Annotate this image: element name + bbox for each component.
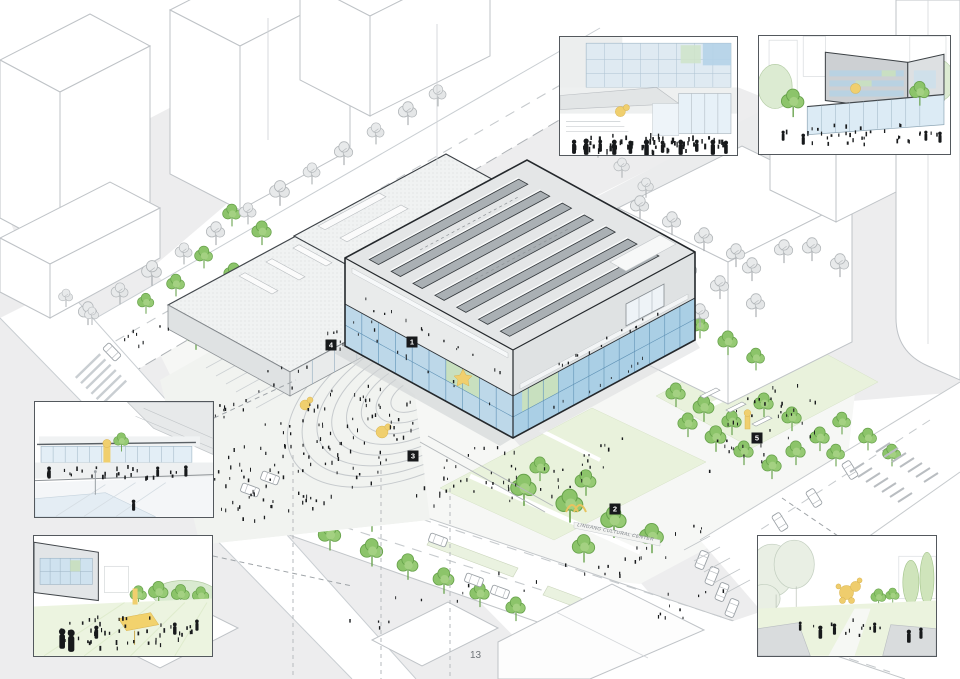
inset-columnar-tree — [920, 552, 934, 604]
person-silhouette — [629, 144, 633, 153]
person-silhouette — [628, 141, 632, 145]
person-silhouette — [710, 140, 715, 145]
person-silhouette — [799, 624, 802, 631]
inset-view-park-sculpture — [757, 535, 937, 657]
person-silhouette — [59, 634, 65, 648]
person-silhouette — [156, 466, 159, 469]
person-silhouette — [782, 134, 785, 141]
person-silhouette — [156, 469, 159, 476]
person-silhouette — [818, 626, 822, 630]
sketch-tree — [398, 102, 416, 125]
plan-marker-1: 1 — [407, 337, 418, 348]
person-silhouette — [799, 622, 802, 625]
person-silhouette — [173, 626, 176, 635]
inset-view-street-level — [34, 401, 214, 518]
inset-corner-perspective-drawing — [759, 36, 950, 154]
person-silhouette — [907, 630, 911, 634]
person-silhouette — [644, 144, 649, 155]
person-silhouette — [924, 134, 927, 141]
person-silhouette — [132, 503, 135, 511]
person-silhouette — [919, 628, 923, 632]
person-silhouette — [195, 620, 199, 624]
person-silhouette — [938, 132, 942, 136]
person-silhouette — [184, 465, 188, 469]
inset-lobby-glass — [653, 104, 679, 136]
inset-yellow-sculpture — [850, 83, 860, 93]
inset-glass-pavilion — [41, 446, 192, 462]
inset-entrance-elevation-drawing — [560, 37, 737, 155]
person-silhouette — [612, 144, 616, 155]
person-silhouette — [661, 141, 665, 145]
person-silhouette — [95, 629, 99, 638]
person-silhouette — [802, 137, 805, 145]
person-silhouette — [644, 140, 649, 145]
person-silhouette — [612, 140, 617, 145]
person-silhouette — [873, 625, 876, 632]
person-silhouette — [572, 140, 576, 144]
person-silhouette — [711, 144, 715, 155]
person-silhouette — [819, 629, 823, 638]
inset-blue-pane — [703, 43, 731, 65]
presentation-board-page: 1 2 3 4 5 LINGANG CULTURAL CENTER 13 — [0, 0, 960, 679]
person-silhouette — [661, 144, 664, 153]
person-silhouette — [68, 629, 75, 636]
person-silhouette — [132, 500, 136, 504]
inset-view-entrance-elevation — [559, 36, 738, 156]
person-silhouette — [572, 144, 576, 154]
person-silhouette — [195, 623, 198, 631]
sketch-tree — [429, 85, 446, 107]
person-silhouette — [924, 131, 927, 134]
plan-marker-5: 5 — [752, 433, 763, 444]
sketch-tree — [367, 123, 384, 145]
inset-green-pane — [681, 45, 701, 63]
inset-street-level-drawing — [35, 402, 213, 517]
person-silhouette — [94, 626, 98, 630]
person-silhouette — [801, 134, 805, 138]
person-silhouette — [68, 636, 74, 652]
person-silhouette — [173, 623, 177, 627]
inset-view-plaza — [33, 535, 213, 657]
person-silhouette — [907, 633, 911, 642]
person-silhouette — [724, 141, 728, 145]
person-silhouette — [695, 143, 698, 152]
person-silhouette — [59, 628, 65, 634]
person-silhouette — [782, 131, 785, 134]
plan-marker-2: 2 — [610, 504, 621, 515]
page-number: 13 — [470, 650, 481, 661]
person-silhouette — [599, 143, 602, 152]
sketch-tree — [175, 243, 192, 265]
person-silhouette — [584, 143, 589, 155]
person-silhouette — [919, 631, 922, 639]
inset-park-drawing — [758, 536, 936, 656]
plan-marker-4: 4 — [326, 340, 337, 351]
inset-plaza-drawing — [34, 536, 212, 656]
person-silhouette — [938, 135, 941, 143]
person-silhouette — [679, 144, 683, 155]
sketch-tree — [206, 222, 224, 245]
person-silhouette — [47, 466, 51, 470]
person-silhouette — [833, 627, 836, 635]
person-silhouette — [724, 144, 728, 153]
person-silhouette — [47, 470, 50, 479]
person-silhouette — [584, 139, 589, 144]
person-silhouette — [598, 140, 602, 144]
person-silhouette — [695, 140, 699, 144]
inset-columnar-tree — [903, 560, 919, 604]
person-silhouette — [873, 623, 876, 626]
inset-green-pane — [70, 560, 80, 571]
inset-view-corner-perspective — [758, 35, 951, 155]
person-silhouette — [678, 140, 683, 145]
plan-marker-3: 3 — [408, 451, 419, 462]
person-silhouette — [833, 624, 837, 628]
person-silhouette — [184, 469, 187, 477]
inset-yellow-sculpture — [133, 588, 138, 604]
